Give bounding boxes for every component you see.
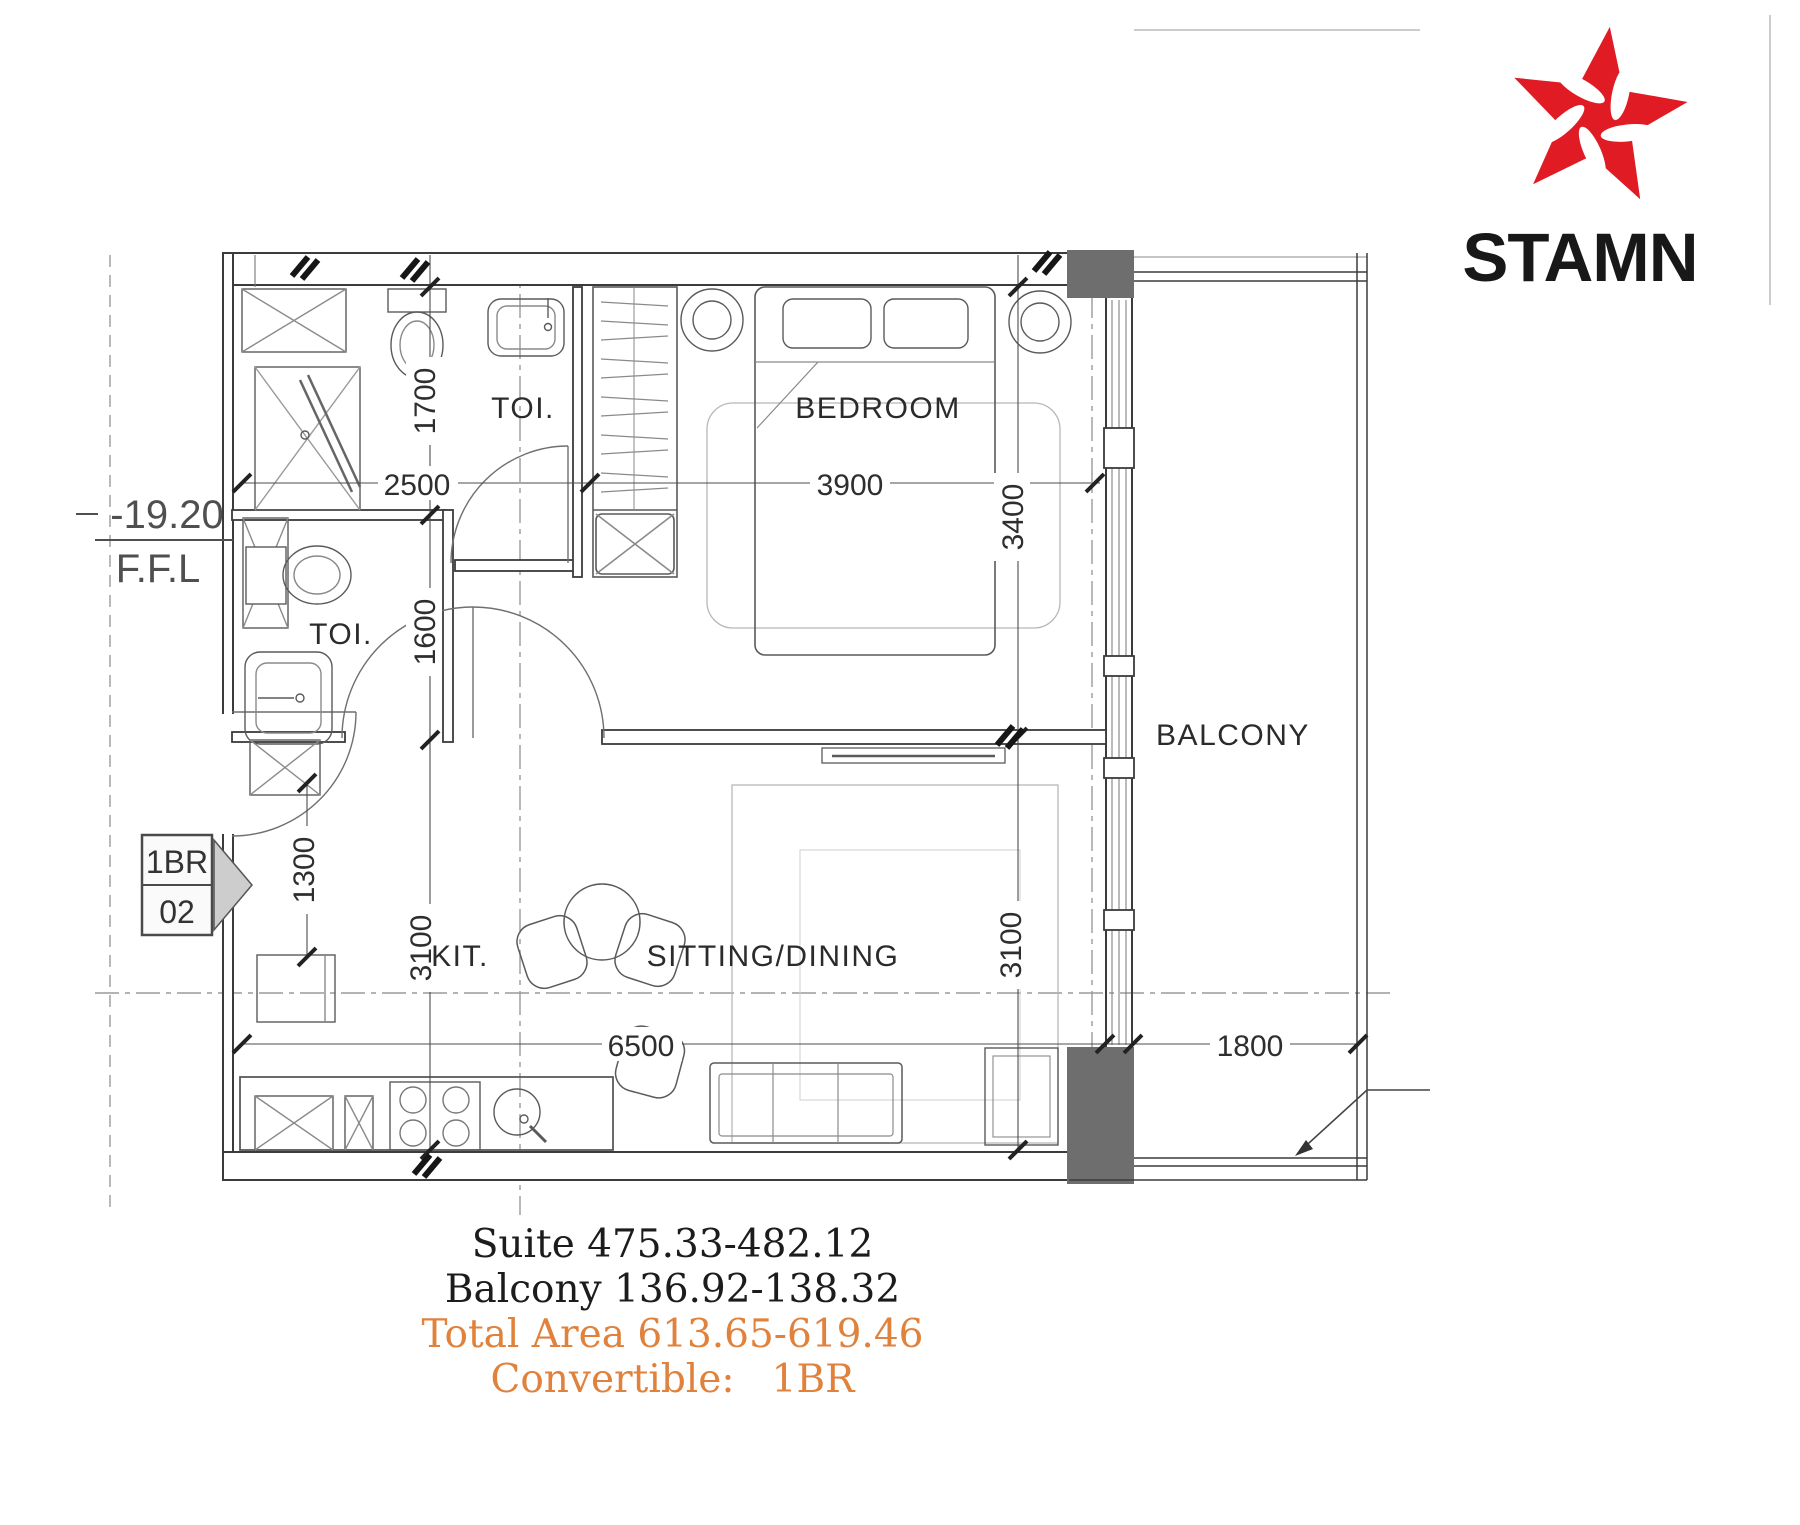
wardrobe (593, 287, 677, 577)
wardrobe-shaft-box (596, 514, 674, 574)
stove (390, 1082, 480, 1150)
dim-toilet-width: 2500 (384, 469, 451, 502)
unit-number: 02 (159, 894, 195, 930)
level-value: -19.20 (110, 493, 223, 537)
balcony-arrow (1295, 1090, 1430, 1156)
tv-console (822, 748, 1005, 763)
label-toilet-mid: TOI. (309, 618, 373, 651)
pillow-right (884, 299, 968, 348)
nightstand-left (681, 289, 743, 351)
label-bedroom: BEDROOM (795, 392, 961, 425)
unit-tag: 1BR 02 (142, 835, 252, 935)
dim-sitting-depth: 3100 (995, 912, 1028, 979)
wall-toilet-top-bottom (455, 560, 575, 571)
convertible-text: Convertible: 1BR (0, 1357, 1345, 1402)
column-top-right (1067, 250, 1134, 298)
shaft-box-top-left (242, 289, 346, 352)
interior-partitions (232, 287, 1106, 744)
balcony-area-text: Balcony 136.92-138.32 (0, 1267, 1345, 1312)
toilet-top-door (451, 446, 568, 563)
column-bottom-right (1067, 1047, 1134, 1184)
shower (255, 367, 360, 510)
kitchen-cabinet-narrow (345, 1096, 373, 1150)
hall-doors (342, 607, 604, 738)
total-area-text: Total Area 613.65-619.46 (0, 1312, 1345, 1357)
dim-bedroom-depth: 3400 (997, 484, 1030, 551)
area-summary: Suite 475.33-482.12 Balcony 136.92-138.3… (0, 1222, 1345, 1402)
dim-unit-width: 6500 (608, 1030, 675, 1063)
dim-toilet-mid-depth: 1600 (409, 599, 442, 666)
dim-entry-depth: 1300 (288, 837, 321, 904)
wall-toilet-mid-right (443, 510, 453, 742)
label-sitting-dining: SITTING/DINING (647, 940, 900, 973)
wc-mid (246, 546, 351, 604)
washing-machine (257, 955, 335, 1022)
top-wall (228, 253, 1071, 285)
kitchen-counter (240, 1077, 613, 1150)
side-console (985, 1048, 1058, 1145)
star-icon (1514, 27, 1687, 199)
dining-table (564, 884, 640, 960)
brand-name: STAMN (1462, 219, 1697, 296)
level-label: F.F.L (116, 547, 200, 591)
sofa (710, 1063, 902, 1143)
balcony-window-wall (1104, 298, 1134, 1047)
label-kitchen: KIT. (431, 940, 489, 973)
pillow-left (783, 299, 871, 348)
dim-balcony-width: 1800 (1217, 1030, 1284, 1063)
label-balcony: BALCONY (1156, 719, 1310, 752)
dim-toilet-top-depth: 1700 (409, 368, 442, 435)
stamn-logo: STAMN (1462, 27, 1697, 296)
label-toilet-top: TOI. (491, 392, 555, 425)
dim-bedroom-width: 3900 (817, 469, 884, 502)
wall-toilet-top-right (573, 287, 582, 577)
bottom-wall (223, 1152, 1069, 1180)
wall-bedroom-divider (602, 730, 1106, 744)
sink-mid (245, 652, 332, 744)
suite-area-text: Suite 475.33-482.12 (0, 1222, 1345, 1267)
sink-top (488, 298, 564, 356)
kitchen-cabinet-cross (255, 1096, 333, 1150)
entry-shaft-box (250, 740, 320, 795)
unit-type: 1BR (146, 844, 208, 880)
level-marker: -19.20 F.F.L (76, 493, 233, 591)
